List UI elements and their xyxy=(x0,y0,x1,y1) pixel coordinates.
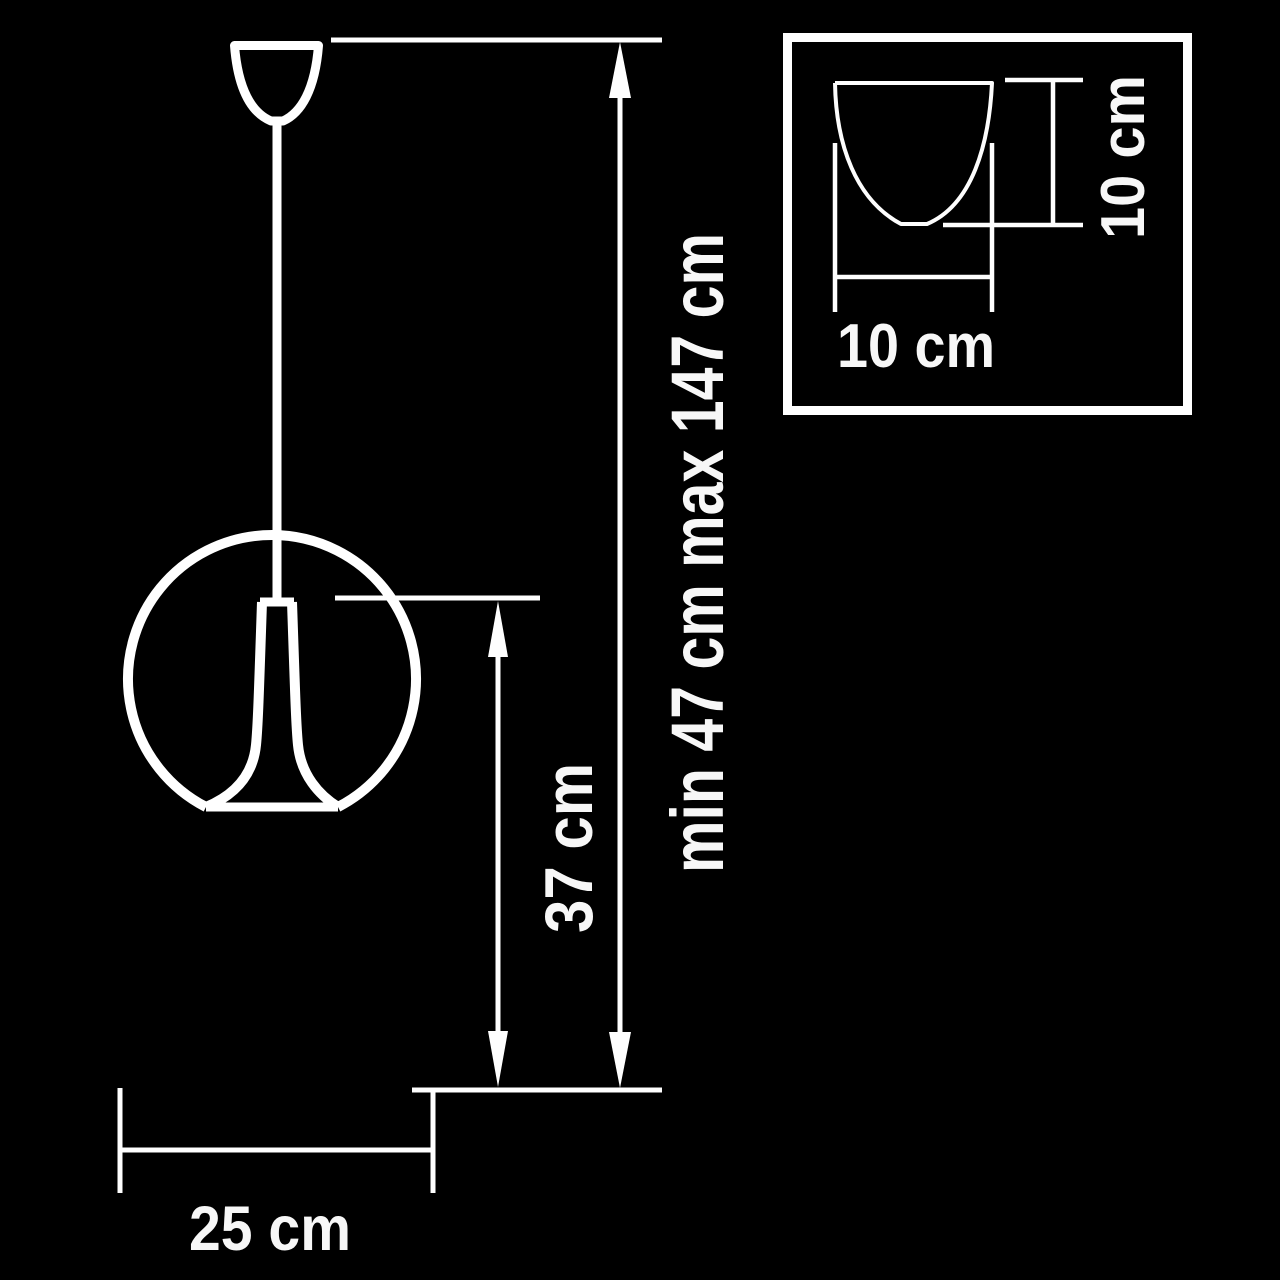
suspension-height-label: min 47 cm max 147 cm xyxy=(656,233,739,873)
canopy-detail-inset: 10 cm 10 cm xyxy=(788,38,1188,411)
diagram-canvas: min 47 cm max 147 cm 37 cm 25 cm 10 cm xyxy=(0,0,1280,1280)
globe-shade xyxy=(128,535,416,807)
arrow-down-icon xyxy=(609,1032,631,1088)
lamp-neck-left xyxy=(206,602,262,807)
dimension-annotations: min 47 cm max 147 cm 37 cm 25 cm xyxy=(120,40,739,1264)
arrow-up-icon xyxy=(488,601,508,657)
pendant-lamp-diagram: min 47 cm max 147 cm 37 cm 25 cm 10 cm xyxy=(0,0,1280,1280)
lamp-neck-right xyxy=(292,602,338,807)
pendant-lamp xyxy=(128,46,416,808)
arrow-down-icon xyxy=(488,1031,508,1087)
canopy-width-label: 10 cm xyxy=(837,312,995,381)
ceiling-canopy xyxy=(235,46,319,122)
arrow-up-icon xyxy=(609,42,631,98)
shade-diameter-label: 25 cm xyxy=(189,1194,351,1264)
canopy-height-label: 10 cm xyxy=(1089,75,1158,239)
canopy-detail-outline xyxy=(835,83,992,224)
fixture-height-label: 37 cm xyxy=(531,763,607,933)
